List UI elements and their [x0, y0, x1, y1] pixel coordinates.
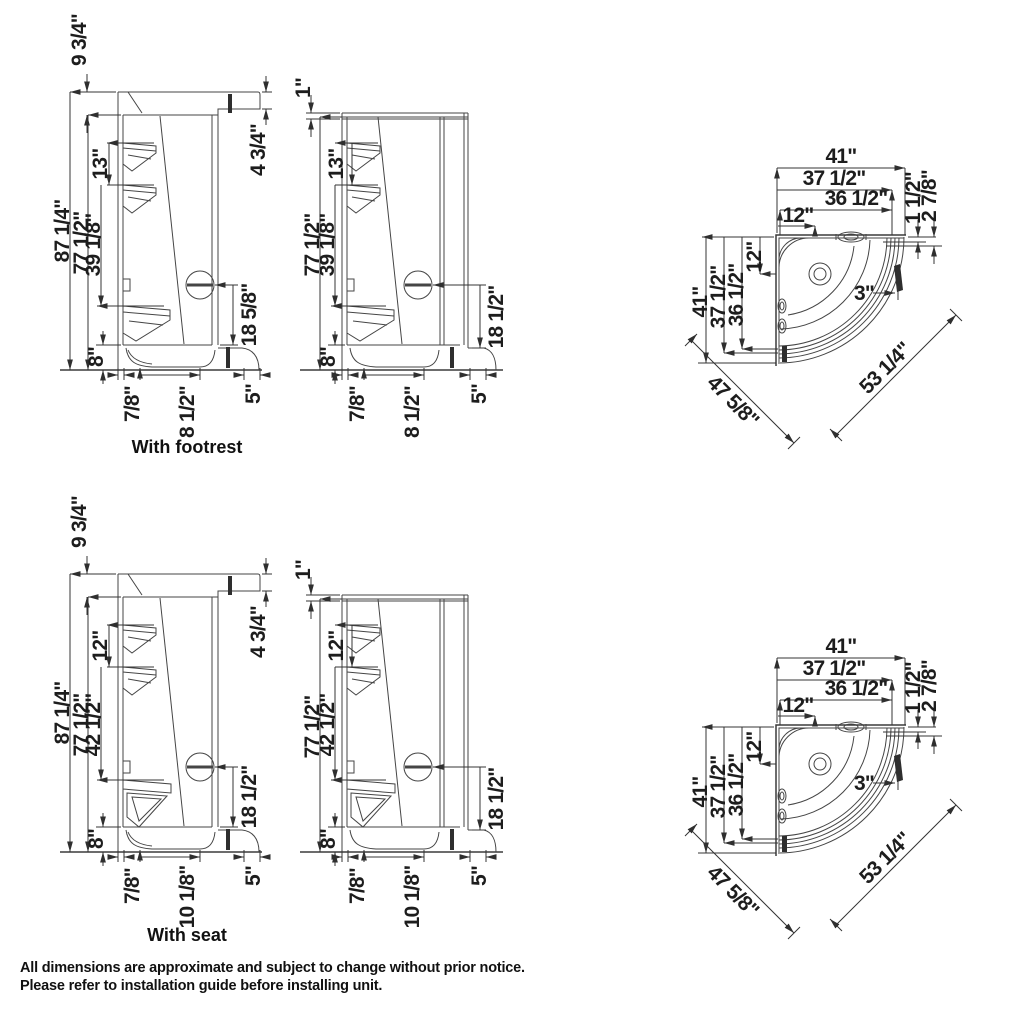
dim-drain-offset: 3" [854, 772, 874, 795]
dim-corner-top: 12" [783, 694, 814, 717]
dim-corner-side: 12" [743, 732, 766, 763]
dims-footrest-open: 1" 77 1/2" 13" 39 1/8" 8" 18 1/2" 7/8" 8… [292, 78, 508, 438]
disclaimer-line-1: All dimensions are approximate and subje… [20, 960, 525, 978]
dim-threshold: 5" [242, 866, 265, 886]
dim-diag-left: 47 5/8" [702, 371, 763, 432]
dim-rest-depth: 8 1/2" [401, 386, 424, 438]
dim-top-trim: 1" [292, 78, 315, 98]
drawing-footrest-open-side: 1" 77 1/2" 13" 39 1/8" 8" 18 1/2" 7/8" 8… [290, 0, 512, 474]
dim-base-lip: 7/8" [346, 868, 369, 904]
label-with-footrest: With footrest [87, 437, 287, 458]
dim-drain-offset: 3" [854, 282, 874, 305]
dim-jet-spacing: 13" [89, 149, 112, 180]
dim-cap-face: 4 3/4" [247, 606, 270, 658]
dim-cap-height: 9 3/4" [68, 496, 91, 548]
dim-width-inner: 36 1/2" [825, 677, 888, 700]
drawing-seat-capped-side: 87 1/4" 77 1/2" 9 3/4" 12" 42 1/2" 8" 4 … [52, 482, 277, 956]
dim-jet-spacing: 12" [89, 631, 112, 662]
dim-corner-side: 12" [743, 242, 766, 273]
drawing-footrest-capped-side: 87 1/4" 77 1/2" 9 3/4" 13" 39 1/8" 8" 4 … [52, 0, 277, 474]
dim-jet-spacing: 13" [325, 149, 348, 180]
disclaimer-note: All dimensions are approximate and subje… [20, 960, 525, 995]
dim-diag-right: 53 1/4" [855, 338, 916, 399]
dim-rest-depth: 10 1/8" [401, 866, 424, 929]
dims-seat-capped: 87 1/4" 77 1/2" 9 3/4" 12" 42 1/2" 8" 4 … [51, 496, 272, 928]
dim-base-lip: 7/8" [346, 386, 369, 422]
dim-jet-to-rest: 39 1/8" [316, 214, 339, 277]
dim-cap-height: 9 3/4" [68, 14, 91, 66]
dim-rest-depth: 8 1/2" [176, 386, 199, 438]
unit-outline [776, 722, 906, 856]
drawing-seat-open-side: 1" 77 1/2" 12" 42 1/2" 8" 18 1/2" 7/8" 1… [290, 482, 512, 956]
dim-control-to-base: 18 1/2" [485, 768, 508, 831]
dim-width: 41" [826, 635, 857, 658]
dim-base-lip: 7/8" [121, 386, 144, 422]
disclaimer-line-2: Please refer to installation guide befor… [20, 978, 525, 996]
dim-corner-top: 12" [783, 204, 814, 227]
dim-rest-depth: 10 1/8" [176, 866, 199, 929]
dim-glass-offset-b: 2 7/8" [918, 170, 941, 222]
steam-fixture [836, 722, 866, 732]
drain [809, 753, 831, 775]
dim-jet-to-rest: 42 1/2" [316, 694, 339, 757]
dim-base-height: 8" [85, 347, 108, 367]
dim-jet-to-rest: 39 1/8" [82, 214, 105, 277]
dims-footrest-capped: 87 1/4" 77 1/2" 9 3/4" 13" 39 1/8" 8" 4 … [51, 14, 272, 438]
dims-plan: 41" 37 1/2" 36 1/2" 12" 41" 37 1/2" 36 1… [685, 635, 962, 939]
dim-base-height: 8" [317, 347, 340, 367]
dims-seat-open: 1" 77 1/2" 12" 42 1/2" 8" 18 1/2" 7/8" 1… [292, 560, 508, 928]
dim-width-inner: 36 1/2" [825, 187, 888, 210]
dim-jet-spacing: 12" [325, 631, 348, 662]
dim-top-trim: 1" [292, 560, 315, 580]
dim-jet-to-rest: 42 1/2" [82, 694, 105, 757]
dim-width: 41" [826, 145, 857, 168]
dim-diag-right: 53 1/4" [855, 828, 916, 889]
dim-glass-offset-b: 2 7/8" [918, 660, 941, 712]
dim-threshold: 5" [468, 866, 491, 886]
dim-base-height: 8" [317, 829, 340, 849]
dim-threshold: 5" [468, 384, 491, 404]
dim-control-to-base: 18 1/2" [238, 766, 261, 829]
drawing-plan-top: 41" 37 1/2" 36 1/2" 12" 41" 37 1/2" 36 1… [668, 140, 1020, 475]
dim-control-to-base: 18 1/2" [485, 286, 508, 349]
unit-outline [776, 232, 906, 366]
dim-threshold: 5" [242, 384, 265, 404]
dim-base-lip: 7/8" [121, 868, 144, 904]
drawing-plan-bottom: 41" 37 1/2" 36 1/2" 12" 41" 37 1/2" 36 1… [668, 630, 1020, 965]
dimension-sheet: 87 1/4" 77 1/2" 9 3/4" 13" 39 1/8" 8" 4 … [0, 0, 1024, 1013]
drain [809, 263, 831, 285]
label-with-seat: With seat [87, 925, 287, 946]
dims-plan: 41" 37 1/2" 36 1/2" 12" 41" 37 1/2" 36 1… [685, 145, 962, 449]
steam-fixture [836, 232, 866, 242]
dim-base-height: 8" [85, 829, 108, 849]
dim-cap-face: 4 3/4" [247, 124, 270, 176]
dim-control-to-base: 18 5/8" [238, 284, 261, 347]
dim-diag-left: 47 5/8" [702, 861, 763, 922]
